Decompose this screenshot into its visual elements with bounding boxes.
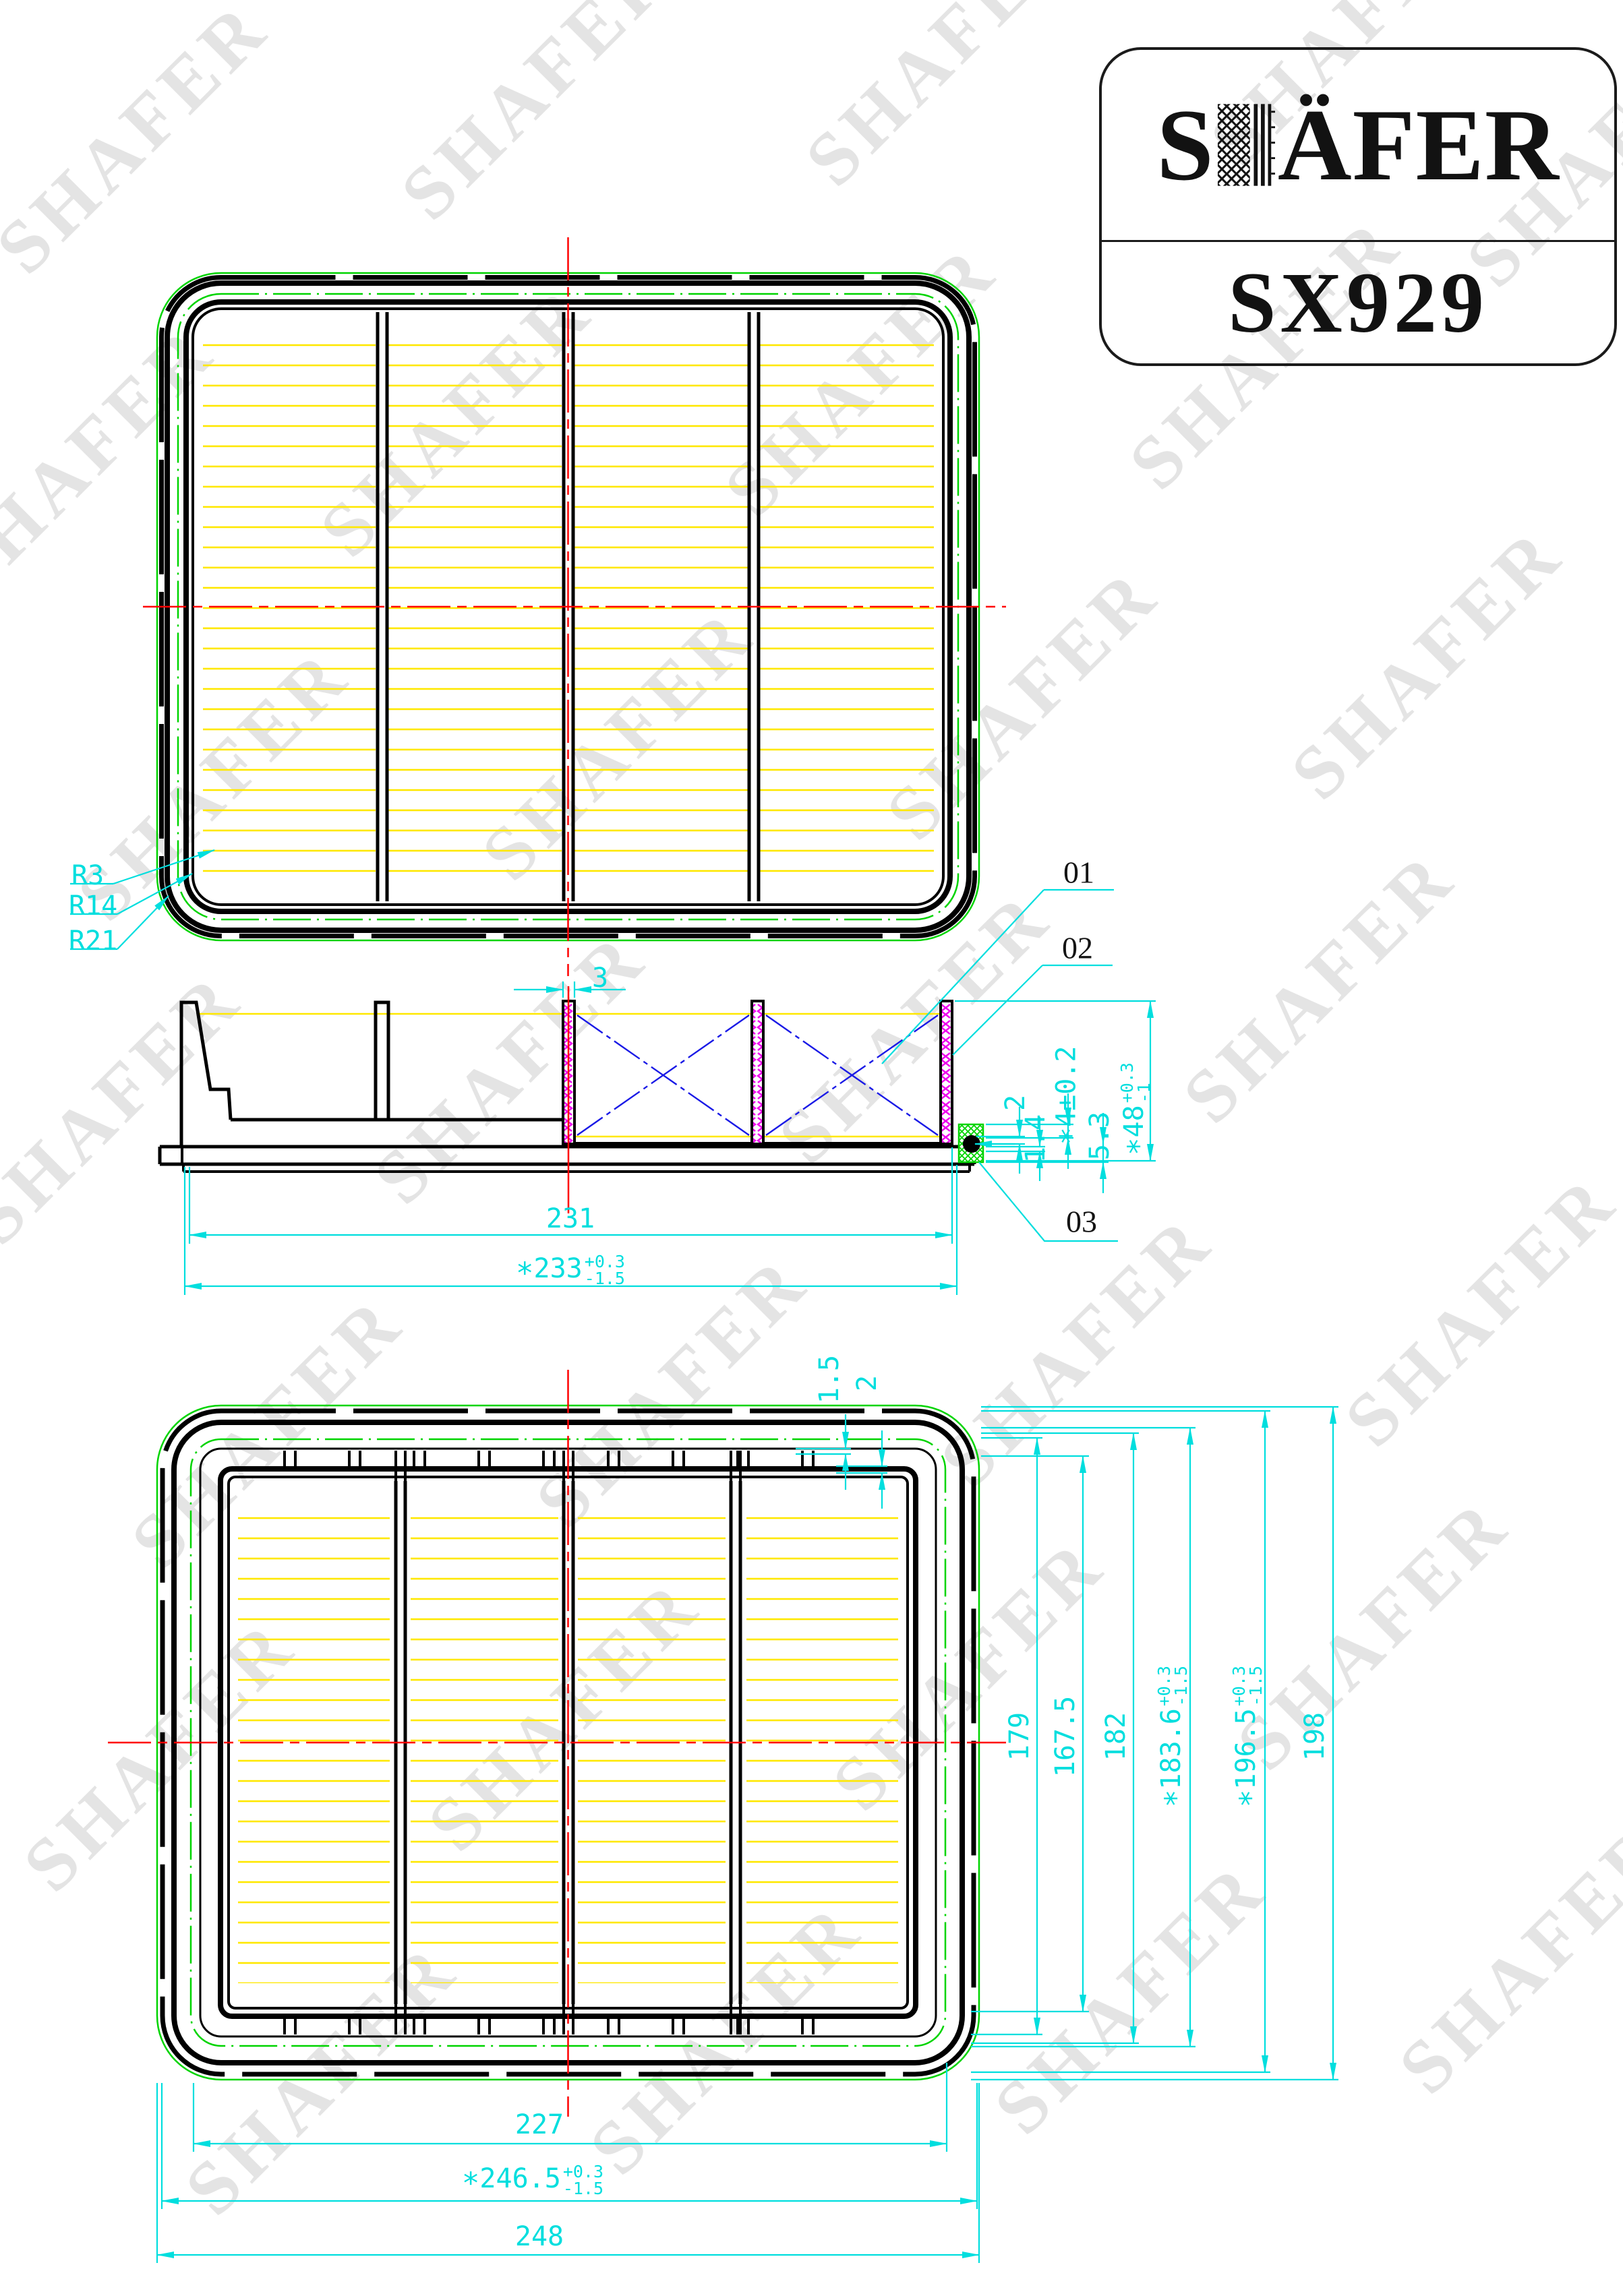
- tolerance-plus: +0.3: [1230, 1666, 1247, 1706]
- pleat-panel: [411, 1511, 558, 1983]
- dim-value: 246.5: [479, 2163, 560, 2194]
- tolerance-minus: -1: [1135, 1062, 1153, 1103]
- dim-seal-depth: 5.3: [1084, 1112, 1115, 1160]
- dim-edge-gap: 2: [1000, 1095, 1031, 1111]
- callout-01: 01: [1063, 855, 1094, 890]
- dim-value: 183.6: [1156, 1708, 1187, 1789]
- pleat-panel: [578, 1511, 726, 1983]
- dim-height-outer: ∗196.5+0.3-1.5: [1228, 1666, 1265, 1807]
- tolerance-plus: +0.3: [1155, 1666, 1173, 1706]
- dim-seal-height: ∗4±0.2: [1049, 1046, 1083, 1145]
- tire-tread-icon: [1217, 101, 1275, 189]
- brand-box: S ÄFER: [1099, 47, 1617, 366]
- brand-prefix: S: [1156, 86, 1214, 204]
- pleat-panel: [746, 1511, 898, 1983]
- star-mark: ∗: [1228, 1790, 1262, 1808]
- dim-height-total: 198: [1299, 1712, 1330, 1761]
- dim-lip-1: 1.5: [814, 1355, 845, 1403]
- star-mark: ∗: [1049, 1127, 1083, 1145]
- tolerance-minus: -1.5: [1247, 1666, 1265, 1706]
- star-mark: ∗: [462, 2161, 480, 2195]
- star-mark: ∗: [1116, 1137, 1150, 1155]
- dim-height-seal: ∗183.6+0.3-1.5: [1153, 1666, 1190, 1807]
- part-number-section: SX929: [1102, 242, 1614, 363]
- tolerance-plus: +0.3: [585, 1252, 625, 1270]
- pleat-panel: [388, 342, 562, 878]
- top-view: [70, 237, 1006, 976]
- dim-height-c: 182: [1100, 1712, 1131, 1761]
- dim-value: 233: [534, 1253, 583, 1284]
- pleat-panel: [760, 342, 934, 878]
- tolerance-plus: +0.3: [1118, 1062, 1135, 1103]
- bottom-view: [108, 1370, 1338, 2263]
- drawing-page: SHAFER SHAFER SHAFER SHAFER SHAFER SHAFE…: [0, 0, 1623, 2296]
- tolerance-minus: -1.5: [585, 1270, 625, 1288]
- pleat-frames: [563, 1001, 952, 1144]
- dim-inner-length: 231: [546, 1203, 595, 1234]
- dim-value: 4±0.2: [1051, 1046, 1082, 1127]
- pleat-panel: [574, 342, 748, 878]
- tolerance-minus: -1.5: [1173, 1666, 1190, 1706]
- centerlines: [108, 1370, 1006, 2117]
- side-view-dimensions: [185, 890, 1156, 1295]
- star-mark: ∗: [516, 1250, 534, 1285]
- radius-label-r14: R14: [69, 890, 117, 922]
- radius-label-r21: R21: [69, 926, 117, 957]
- dim-media-length: ∗233+0.3-1.5: [516, 1250, 625, 1288]
- dim-width-total: 248: [515, 2221, 564, 2252]
- radius-label-r3: R3: [71, 860, 104, 891]
- dim-lip: 1.4: [1020, 1114, 1051, 1163]
- dim-width-seal: ∗246.5+0.3-1.5: [462, 2161, 603, 2198]
- star-mark: ∗: [1153, 1790, 1187, 1808]
- part-number: SX929: [1228, 253, 1488, 353]
- brand-suffix: ÄFER: [1278, 86, 1560, 204]
- dim-height-b: 167.5: [1050, 1696, 1081, 1777]
- callout-03: 03: [1066, 1204, 1097, 1240]
- pleat-panel: [238, 1511, 390, 1983]
- tolerance-plus: +0.3: [563, 2163, 603, 2180]
- callout-02: 02: [1062, 930, 1093, 966]
- brand-section: S ÄFER: [1102, 50, 1614, 242]
- dim-pleat-frame-thickness: 3: [592, 963, 608, 994]
- dim-value: 196.5: [1231, 1708, 1262, 1789]
- dim-total-height: ∗48+0.3-1: [1116, 1062, 1153, 1155]
- side-view: [160, 890, 1156, 1295]
- dim-value: 48: [1119, 1105, 1150, 1137]
- tolerance-minus: -1.5: [563, 2180, 603, 2198]
- dim-width-inner: 227: [515, 2109, 564, 2140]
- brand-text: S ÄFER: [1156, 86, 1559, 204]
- base-plate: [160, 1147, 974, 1172]
- dim-lip-2: 2: [852, 1375, 883, 1391]
- dim-height-a: 179: [1004, 1712, 1035, 1761]
- pleat-panel: [203, 342, 376, 878]
